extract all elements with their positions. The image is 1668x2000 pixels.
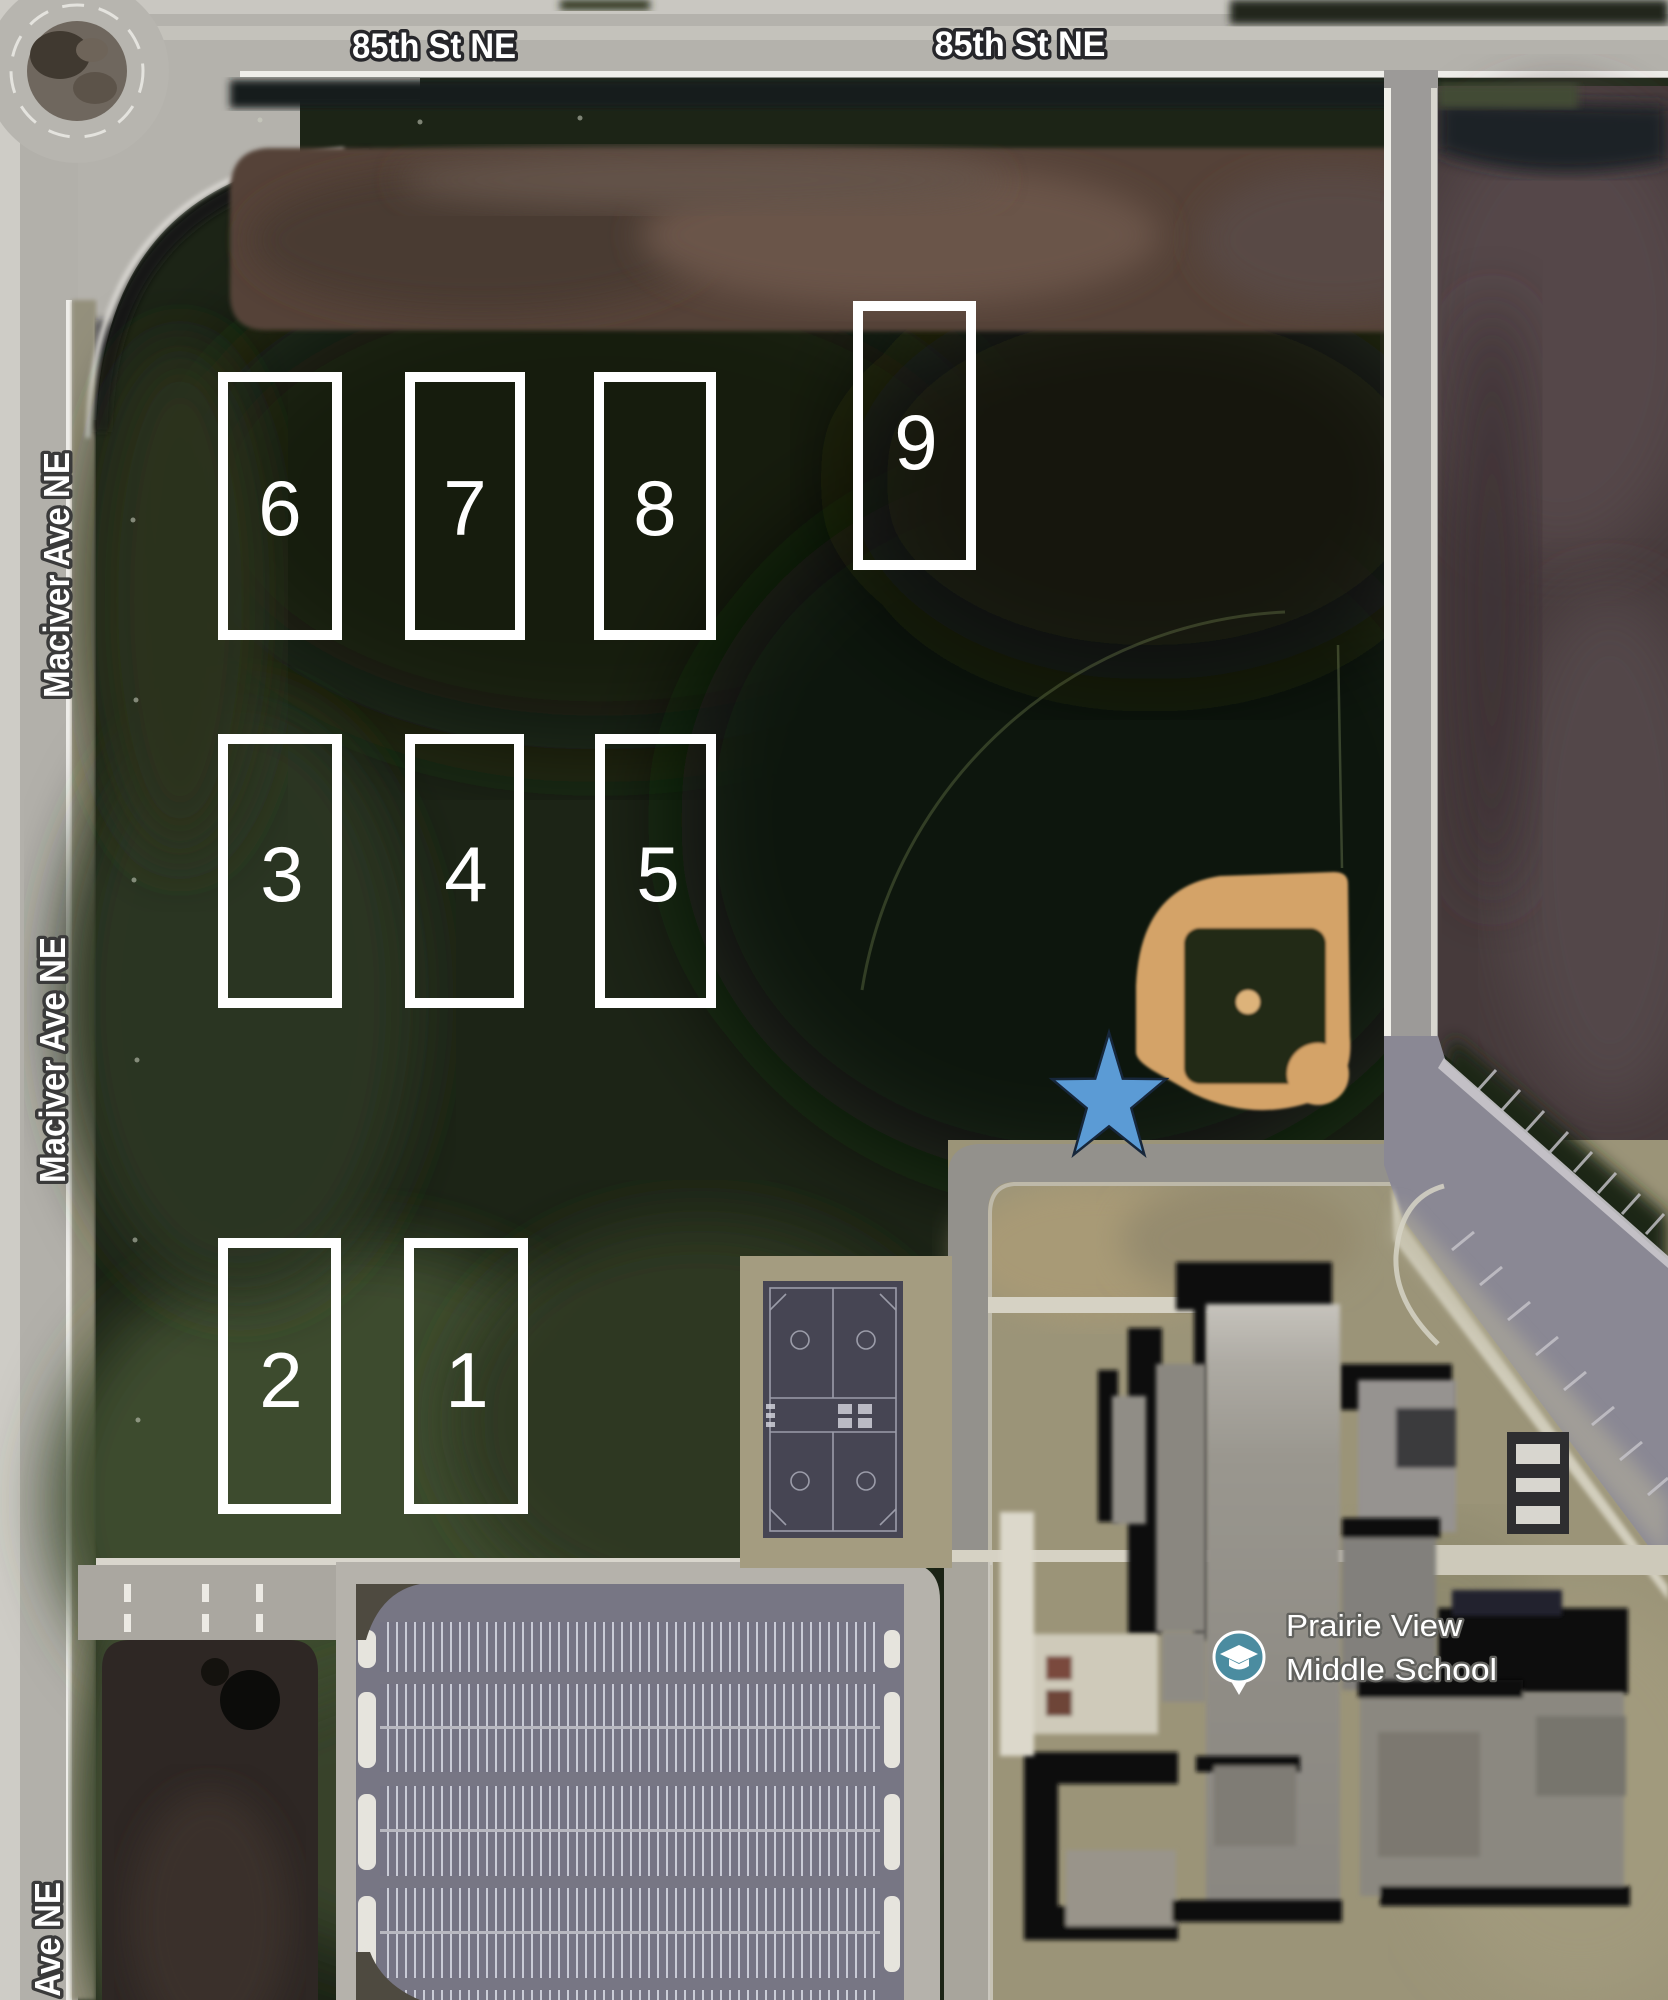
svg-text:8: 8: [633, 464, 676, 552]
svg-text:3: 3: [260, 830, 303, 918]
svg-text:85th St NE: 85th St NE: [352, 27, 516, 66]
svg-text:4: 4: [444, 830, 487, 918]
svg-text:6: 6: [258, 464, 301, 552]
svg-text:Maciver Ave NE: Maciver Ave NE: [27, 1882, 68, 2000]
svg-text:2: 2: [259, 1336, 302, 1424]
svg-text:5: 5: [636, 830, 679, 918]
svg-text:Prairie View: Prairie View: [1286, 1608, 1463, 1643]
svg-text:Maciver Ave NE: Maciver Ave NE: [32, 937, 73, 1183]
svg-text:1: 1: [445, 1336, 488, 1424]
svg-text:Middle School: Middle School: [1286, 1652, 1497, 1687]
svg-text:85th St NE: 85th St NE: [935, 25, 1106, 64]
svg-text:7: 7: [443, 464, 486, 552]
svg-text:Maciver Ave NE: Maciver Ave NE: [36, 452, 77, 698]
svg-text:9: 9: [894, 398, 937, 486]
